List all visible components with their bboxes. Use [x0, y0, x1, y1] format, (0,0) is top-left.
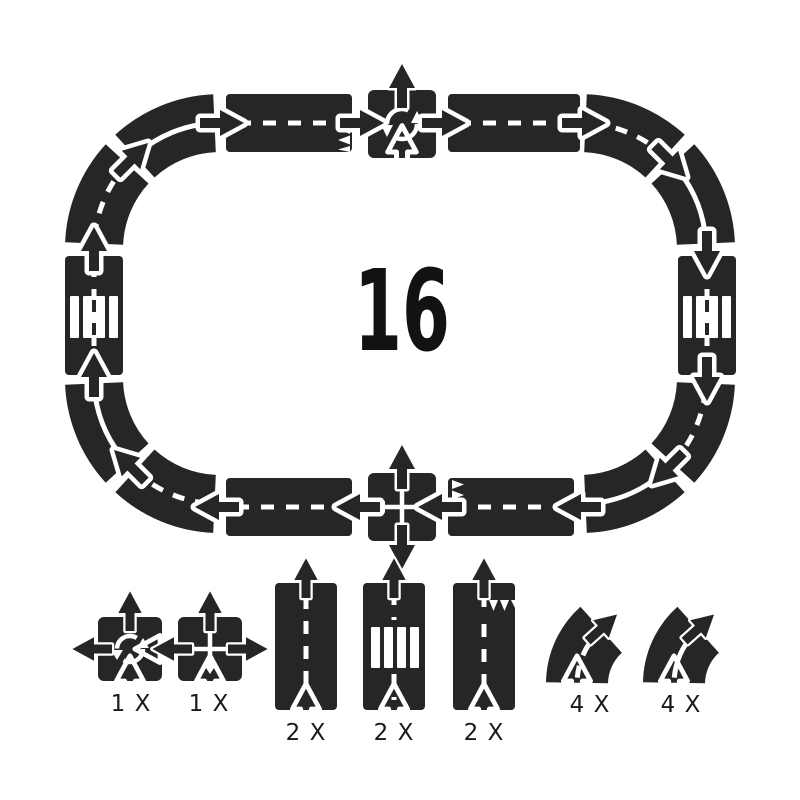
- legend-crosswalk-count: 2 X: [374, 720, 415, 746]
- legend: 1 X 1 X 2 X: [72, 558, 721, 746]
- legend-intersection-icon: [152, 591, 267, 702]
- product-diagram: 16 1 X 1 X: [0, 0, 800, 800]
- legend-curve-dashed-count: 4 X: [570, 692, 611, 718]
- legend-curve-solid-icon: [643, 606, 722, 702]
- legend-ramp-count: 2 X: [464, 720, 505, 746]
- legend-straight-icon: [275, 558, 337, 730]
- legend-curve-dashed-icon: [546, 606, 625, 702]
- legend-crosswalk-icon: [363, 558, 425, 730]
- legend-curve-solid-count: 4 X: [661, 692, 702, 718]
- road-set-illustration: 16 1 X 1 X: [0, 0, 800, 800]
- legend-ramp-icon: [453, 558, 515, 730]
- piece-count-label: 16: [354, 247, 450, 377]
- legend-roundabout-count: 1 X: [111, 691, 152, 717]
- legend-intersection-count: 1 X: [189, 691, 230, 717]
- legend-straight-count: 2 X: [286, 720, 327, 746]
